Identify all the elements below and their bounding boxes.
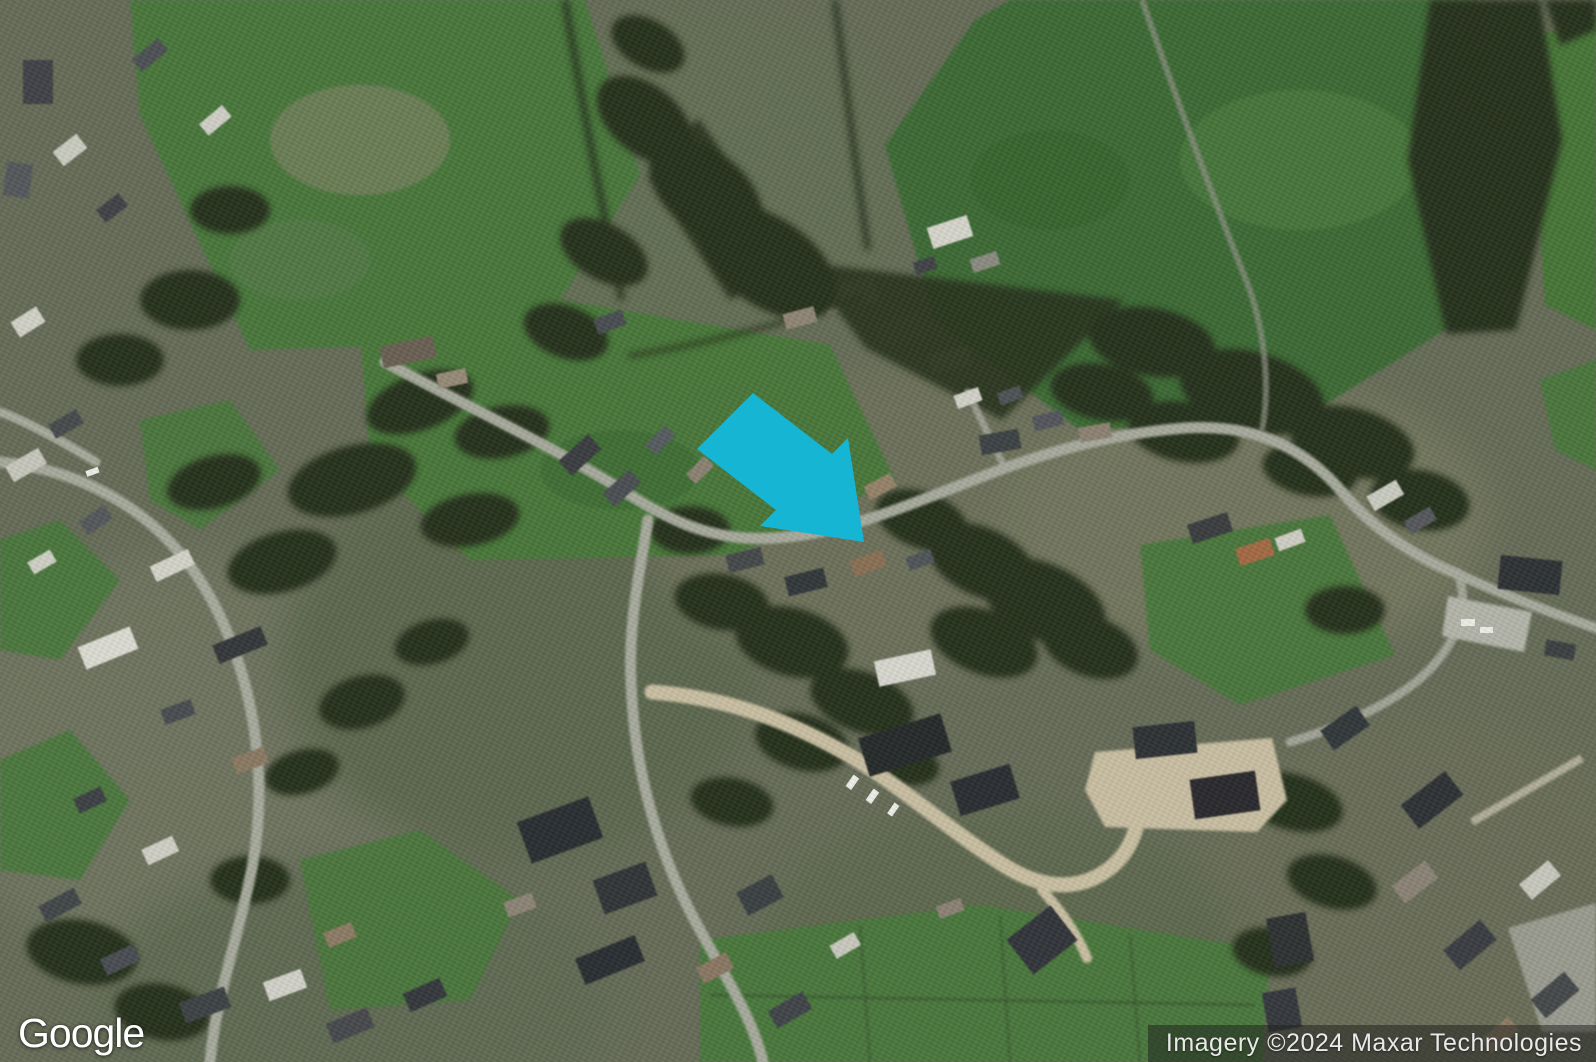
- google-logo[interactable]: Google: [18, 1013, 144, 1054]
- imagery-attribution: Imagery ©2024 Maxar Technologies: [1148, 1025, 1596, 1062]
- map-viewport[interactable]: Google Imagery ©2024 Maxar Technologies: [0, 0, 1596, 1062]
- location-arrow-annotation: [697, 393, 864, 542]
- annotation-layer: [0, 0, 1596, 1062]
